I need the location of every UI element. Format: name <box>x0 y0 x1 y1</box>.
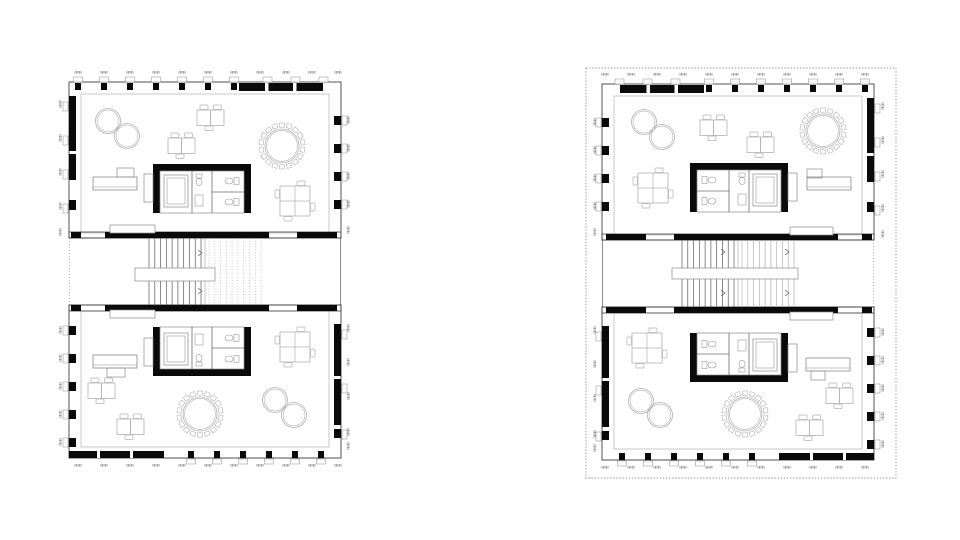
architectural-drawing-canvas <box>0 0 960 540</box>
floor-opening <box>790 312 833 320</box>
floor-opening <box>790 227 833 235</box>
floor-opening <box>110 225 155 233</box>
floor-plans-svg <box>0 0 960 540</box>
floor-opening <box>110 310 155 318</box>
